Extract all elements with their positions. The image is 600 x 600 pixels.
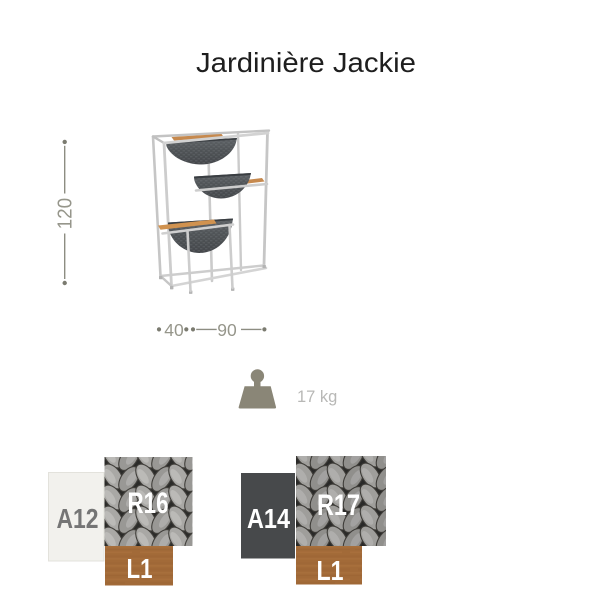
svg-text:17 kg: 17 kg: [297, 388, 337, 406]
svg-text:90: 90: [217, 320, 237, 340]
svg-text:L1: L1: [317, 555, 344, 586]
svg-text:A14: A14: [247, 503, 290, 534]
svg-text:R16: R16: [128, 487, 169, 520]
svg-text:A12: A12: [57, 503, 99, 534]
svg-text:Jardinière Jackie: Jardinière Jackie: [196, 47, 416, 78]
svg-text:L1: L1: [127, 553, 153, 584]
svg-text:40: 40: [164, 320, 184, 340]
svg-text:120: 120: [54, 198, 76, 230]
svg-text:R17: R17: [317, 489, 360, 522]
